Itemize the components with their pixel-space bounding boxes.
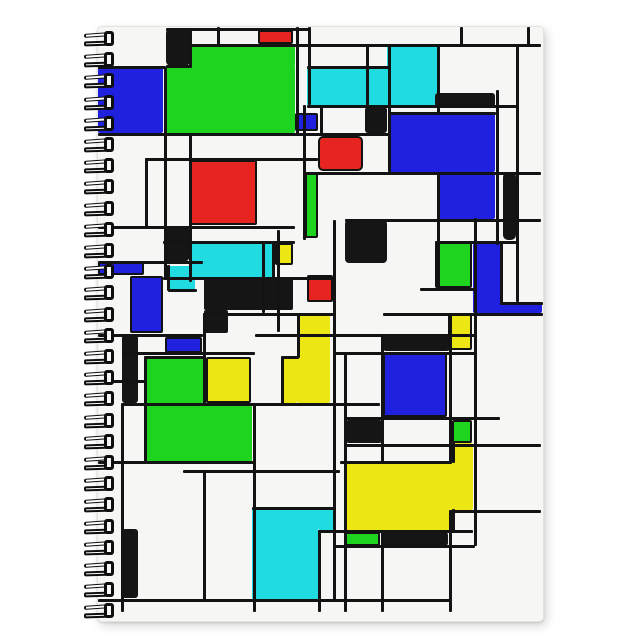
spiral-coil	[84, 179, 116, 195]
spiral-coil	[84, 158, 116, 174]
coil-hook	[104, 158, 114, 173]
coil-hook	[104, 561, 114, 576]
spiral-coil	[84, 52, 116, 68]
coil-hook	[104, 370, 114, 385]
notebook-product-photo	[0, 0, 644, 644]
spiral-coil	[84, 519, 116, 535]
coil-hook	[104, 222, 114, 237]
spiral-coil	[84, 603, 116, 619]
coil-hook	[104, 349, 114, 364]
spiral-binding	[0, 0, 644, 644]
spiral-coil	[84, 434, 116, 450]
spiral-coil	[84, 370, 116, 386]
coil-hook	[104, 201, 114, 216]
spiral-coil	[84, 497, 116, 513]
coil-hook	[104, 31, 114, 46]
spiral-coil	[84, 413, 116, 429]
coil-hook	[104, 603, 114, 618]
spiral-coil	[84, 285, 116, 301]
coil-hook	[104, 95, 114, 110]
coil-hook	[104, 52, 114, 67]
spiral-coil	[84, 73, 116, 89]
coil-hook	[104, 540, 114, 555]
spiral-coil	[84, 582, 116, 598]
spiral-coil	[84, 540, 116, 556]
coil-hook	[104, 455, 114, 470]
spiral-coil	[84, 243, 116, 259]
coil-hook	[104, 497, 114, 512]
coil-hook	[104, 264, 114, 279]
spiral-coil	[84, 201, 116, 217]
spiral-coil	[84, 455, 116, 471]
spiral-coil	[84, 391, 116, 407]
spiral-coil	[84, 31, 116, 47]
coil-hook	[104, 307, 114, 322]
spiral-coil	[84, 137, 116, 153]
spiral-coil	[84, 561, 116, 577]
coil-hook	[104, 519, 114, 534]
spiral-coil	[84, 476, 116, 492]
coil-hook	[104, 116, 114, 131]
coil-hook	[104, 476, 114, 491]
coil-hook	[104, 328, 114, 343]
coil-hook	[104, 179, 114, 194]
coil-hook	[104, 243, 114, 258]
coil-hook	[104, 434, 114, 449]
coil-hook	[104, 285, 114, 300]
coil-hook	[104, 137, 114, 152]
spiral-coil	[84, 264, 116, 280]
coil-hook	[104, 391, 114, 406]
coil-hook	[104, 413, 114, 428]
coil-hook	[104, 582, 114, 597]
spiral-coil	[84, 328, 116, 344]
spiral-coil	[84, 116, 116, 132]
spiral-coil	[84, 307, 116, 323]
spiral-coil	[84, 349, 116, 365]
coil-hook	[104, 73, 114, 88]
spiral-coil	[84, 95, 116, 111]
spiral-coil	[84, 222, 116, 238]
